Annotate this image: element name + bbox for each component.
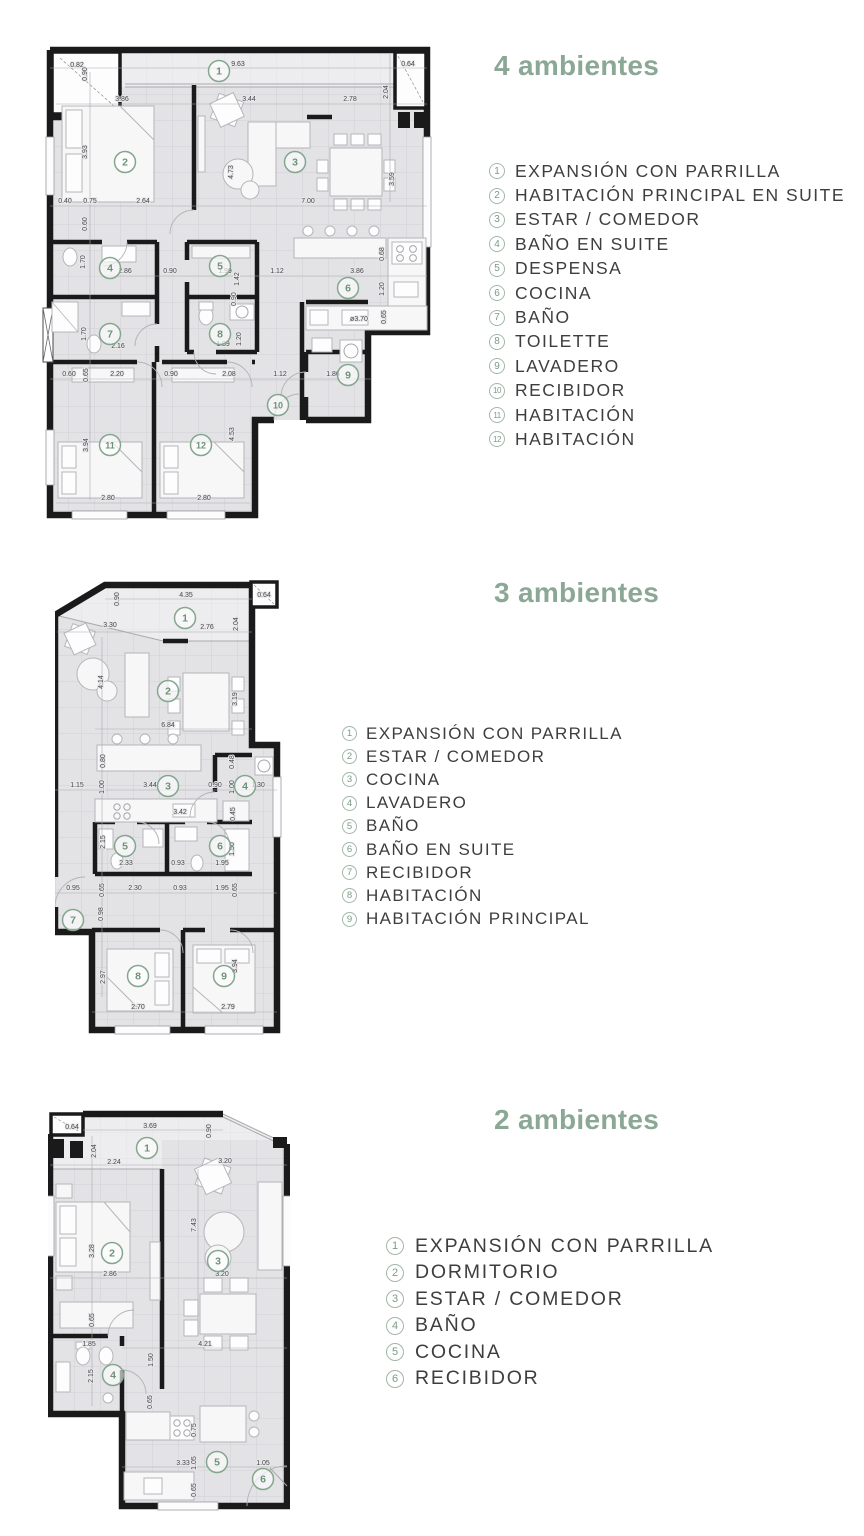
dimension-label: 0.45 (230, 807, 237, 821)
dimension-label: 0.93 (173, 885, 187, 892)
dimension-label: 2.86 (103, 1271, 117, 1278)
svg-text:5: 5 (217, 261, 223, 273)
legend-item-label: ESTAR / COMEDOR (515, 209, 701, 230)
svg-text:8: 8 (217, 329, 223, 341)
dimension-label: 0.65 (147, 1395, 154, 1409)
legend-item-label: EXPANSIÓN CON PARRILLA (415, 1235, 714, 1258)
dimension-label: 0.80 (100, 754, 107, 768)
dimension-label: 1.00 (99, 780, 106, 794)
legend-4-ambientes: 1EXPANSIÓN CON PARRILLA2HABITACIÓN PRINC… (489, 159, 845, 452)
svg-text:11: 11 (105, 441, 115, 451)
dimension-label: 3.42 (173, 809, 187, 816)
dimension-label: 0.98 (98, 907, 105, 921)
dimension-label: 2.33 (119, 860, 133, 867)
room-marker: 8 (210, 324, 231, 345)
svg-text:6: 6 (345, 283, 351, 295)
dimension-label: 0.90 (82, 67, 89, 81)
dimension-label: 2.24 (107, 1159, 121, 1166)
legend-number-badge: 2 (489, 188, 505, 204)
dimension-label: 0.48 (229, 755, 236, 769)
svg-text:6: 6 (260, 1474, 266, 1486)
room-marker: 4 (235, 776, 256, 797)
dimension-label: 2.20 (110, 371, 124, 378)
legend-item: 11HABITACIÓN (489, 403, 845, 427)
legend-number-badge: 3 (342, 772, 357, 787)
dimension-label: 2.80 (101, 495, 115, 502)
dimension-label: 2.79 (221, 1004, 235, 1011)
room-marker: 5 (207, 1452, 228, 1473)
room-marker: 12 (191, 435, 212, 456)
svg-text:2: 2 (122, 157, 128, 169)
legend-item: 9LAVADERO (489, 354, 845, 378)
floor-plan-2-ambientes: 0.643.690.902.042.243.203.282.867.433.20… (48, 1106, 290, 1516)
svg-text:1: 1 (216, 66, 222, 78)
room-marker: 6 (253, 1469, 274, 1490)
dimension-label: 3.93 (82, 145, 89, 159)
dimension-label: 0.90 (164, 371, 178, 378)
legend-number-badge: 2 (342, 749, 357, 764)
legend-item-label: BAÑO (515, 307, 571, 328)
dimension-label: 3.86 (350, 268, 364, 275)
legend-item-label: HABITACIÓN (366, 886, 483, 906)
room-marker: 1 (175, 608, 196, 629)
dimension-label: 1.12 (273, 371, 287, 378)
dimension-label: 1.50 (148, 1353, 155, 1367)
dimension-label: 1.20 (236, 332, 243, 346)
dimension-label: 0.75 (83, 198, 97, 205)
room-marker: 3 (208, 1251, 229, 1272)
dimension-label: 0.90 (206, 1124, 213, 1138)
svg-text:6: 6 (217, 841, 223, 853)
legend-number-badge: 5 (342, 819, 357, 834)
legend-item: 5COCINA (386, 1339, 714, 1366)
legend-number-badge: 7 (342, 865, 357, 880)
legend-item: 2HABITACIÓN PRINCIPAL EN SUITE (489, 183, 845, 207)
legend-item-label: RECIBIDOR (415, 1367, 540, 1390)
legend-number-badge: 12 (489, 431, 505, 447)
svg-text:7: 7 (107, 329, 113, 341)
room-marker: 2 (115, 152, 136, 173)
legend-item: 3COCINA (342, 768, 623, 791)
legend-item: 6BAÑO EN SUITE (342, 838, 623, 861)
legend-item-label: EXPANSIÓN CON PARRILLA (366, 724, 623, 744)
dimension-label: 7.00 (301, 198, 315, 205)
dimension-label: 4.35 (179, 592, 193, 599)
legend-number-badge: 6 (342, 842, 357, 857)
dimension-label: 2.80 (197, 495, 211, 502)
room-marker: 5 (210, 256, 231, 277)
plan-title-2-ambientes: 2 ambientes (494, 1104, 659, 1136)
legend-item: 12HABITACIÓN (489, 427, 845, 451)
legend-item: 7BAÑO (489, 305, 845, 329)
legend-item: 4BAÑO (386, 1313, 714, 1340)
legend-number-badge: 9 (489, 358, 505, 374)
legend-item-label: TOILETTE (515, 331, 610, 352)
room-marker: 6 (210, 836, 231, 857)
dimension-label: 0.68 (379, 247, 386, 261)
dimension-label: 1.05 (191, 1456, 198, 1470)
legend-item-label: HABITACIÓN PRINCIPAL EN SUITE (515, 185, 845, 206)
room-marker: 6 (338, 278, 359, 299)
dimension-label: 0.95 (66, 885, 80, 892)
legend-number-badge: 3 (489, 212, 505, 228)
svg-text:4: 4 (110, 1370, 116, 1382)
svg-text:3: 3 (292, 157, 298, 169)
dimension-label: 0.65 (83, 368, 90, 382)
legend-item-label: EXPANSIÓN CON PARRILLA (515, 161, 781, 182)
room-marker: 1 (209, 61, 230, 82)
room-marker: 3 (158, 776, 179, 797)
dimension-label: 1.95 (215, 885, 229, 892)
svg-text:7: 7 (70, 915, 76, 927)
legend-item-label: ESTAR / COMEDOR (415, 1288, 624, 1311)
dimension-label: 3.44 (143, 782, 157, 789)
dimension-label: 1.12 (270, 268, 284, 275)
dimension-label: 0.65 (89, 1313, 96, 1327)
dimension-label: 3.19 (232, 692, 239, 706)
legend-item-label: DESPENSA (515, 258, 622, 279)
svg-text:4: 4 (107, 263, 113, 275)
legend-3-ambientes: 1EXPANSIÓN CON PARRILLA2ESTAR / COMEDOR3… (342, 722, 623, 931)
legend-item-label: BAÑO EN SUITE (515, 234, 670, 255)
legend-item: 4LAVADERO (342, 792, 623, 815)
legend-item-label: LAVADERO (515, 356, 620, 377)
svg-text:3: 3 (215, 1256, 221, 1268)
legend-item: 1EXPANSIÓN CON PARRILLA (342, 722, 623, 745)
dimension-label: 0.90 (114, 592, 121, 606)
dimension-label: 2.64 (136, 198, 150, 205)
dimension-label: 2.04 (233, 617, 240, 631)
svg-text:12: 12 (196, 441, 206, 451)
dimension-label: 0.64 (257, 592, 271, 599)
room-marker: 11 (100, 435, 121, 456)
dimension-label: 0.40 (58, 198, 72, 205)
dimension-label: 1.15 (70, 782, 84, 789)
legend-item-label: HABITACIÓN (515, 405, 636, 426)
room-marker: 2 (102, 1243, 123, 1264)
dimension-label: 3.94 (83, 438, 90, 452)
dimension-label: 4.14 (98, 675, 105, 689)
room-marker: 4 (103, 1365, 124, 1386)
legend-number-badge: 6 (489, 285, 505, 301)
legend-item: 4BAÑO EN SUITE (489, 232, 845, 256)
dimension-label: 2.04 (91, 1144, 98, 1158)
legend-item-label: DORMITORIO (415, 1261, 559, 1284)
dimension-label: 4.21 (198, 1341, 212, 1348)
svg-text:8: 8 (135, 971, 141, 983)
room-marker: 7 (63, 910, 84, 931)
room-marker: 10 (268, 395, 289, 416)
legend-item-label: HABITACIÓN (515, 429, 636, 450)
legend-number-badge: 4 (342, 796, 357, 811)
room-marker: 9 (214, 966, 235, 987)
legend-number-badge: 5 (386, 1343, 404, 1361)
legend-number-badge: 8 (489, 334, 505, 350)
svg-text:2: 2 (165, 686, 171, 698)
room-marker: 8 (128, 966, 149, 987)
dimension-label: 3.30 (103, 622, 117, 629)
dimension-label: 0.65 (381, 310, 388, 324)
legend-item: 1EXPANSIÓN CON PARRILLA (489, 159, 845, 183)
legend-item: 6COCINA (489, 281, 845, 305)
legend-item: 2ESTAR / COMEDOR (342, 745, 623, 768)
dimension-label: 0.65 (99, 883, 106, 897)
legend-number-badge: 1 (386, 1237, 404, 1255)
legend-number-badge: 11 (489, 407, 505, 423)
legend-2-ambientes: 1EXPANSIÓN CON PARRILLA2DORMITORIO3ESTAR… (386, 1233, 714, 1392)
legend-item: 3ESTAR / COMEDOR (489, 208, 845, 232)
svg-text:2: 2 (109, 1248, 115, 1260)
legend-item: 5BAÑO (342, 815, 623, 838)
legend-item: 10RECIBIDOR (489, 379, 845, 403)
room-marker: 7 (100, 324, 121, 345)
dimension-label: 7.43 (191, 1218, 198, 1232)
legend-number-badge: 10 (489, 383, 505, 399)
legend-item-label: RECIBIDOR (366, 863, 473, 883)
dimension-label: 3.28 (89, 1244, 96, 1258)
legend-item-label: BAÑO (366, 816, 420, 836)
dimension-label: 0.90 (208, 782, 222, 789)
legend-number-badge: 6 (386, 1370, 404, 1388)
dimension-label: 1.70 (80, 255, 87, 269)
dimension-label: 2.78 (343, 96, 357, 103)
room-marker: 5 (115, 836, 136, 857)
svg-text:1: 1 (182, 613, 188, 625)
legend-item: 2DORMITORIO (386, 1260, 714, 1287)
legend-item-label: LAVADERO (366, 793, 467, 813)
dimension-label: 1.05 (256, 1460, 270, 1467)
dimension-label: 0.64 (401, 61, 415, 68)
legend-item: 5DESPENSA (489, 257, 845, 281)
dimension-label: 2.08 (222, 371, 236, 378)
plan-title-3-ambientes: 3 ambientes (494, 577, 659, 609)
legend-number-badge: 5 (489, 261, 505, 277)
floor-plan-3-ambientes: 0.904.350.643.302.762.044.143.196.840.80… (55, 577, 283, 1035)
room-marker: 9 (338, 365, 359, 386)
legend-item: 6RECIBIDOR (386, 1366, 714, 1393)
svg-text:5: 5 (214, 1457, 220, 1469)
dimension-label: 2.15 (100, 835, 107, 849)
legend-number-badge: 4 (489, 236, 505, 252)
dimension-label: 3.59 (389, 172, 396, 186)
dimension-label: 0.75 (191, 1423, 198, 1437)
svg-text:3: 3 (165, 781, 171, 793)
dimension-label: 3.20 (218, 1158, 232, 1165)
dimension-label: 9.63 (231, 61, 245, 68)
svg-text:9: 9 (345, 370, 351, 382)
dimension-label: 1.42 (234, 272, 241, 286)
floor-plan-4-ambientes: 0.820.909.630.643.863.442.782.043.934.73… (42, 42, 434, 528)
legend-item-label: ESTAR / COMEDOR (366, 747, 545, 767)
legend-item-label: COCINA (415, 1341, 502, 1364)
dimension-label: ø3.70 (350, 316, 368, 323)
legend-number-badge: 1 (342, 726, 357, 741)
room-marker: 1 (137, 1138, 158, 1159)
legend-item-label: BAÑO EN SUITE (366, 840, 516, 860)
legend-number-badge: 2 (386, 1264, 404, 1282)
legend-item-label: BAÑO (415, 1314, 477, 1337)
legend-number-badge: 3 (386, 1290, 404, 1308)
room-marker: 4 (100, 258, 121, 279)
dimension-label: 3.33 (176, 1460, 190, 1467)
dimension-label: 1.95 (215, 860, 229, 867)
dimension-label: 3.44 (242, 96, 256, 103)
dimension-label: 0.90 (163, 268, 177, 275)
dimension-label: 0.65 (232, 883, 239, 897)
legend-item-label: COCINA (515, 283, 592, 304)
dimension-label: 2.97 (100, 970, 107, 984)
svg-text:1: 1 (144, 1143, 150, 1155)
dimension-label: 0.93 (171, 860, 185, 867)
legend-number-badge: 9 (342, 912, 357, 927)
plan-title-4-ambientes: 4 ambientes (494, 50, 659, 82)
legend-item-label: COCINA (366, 770, 441, 790)
dimension-label: 0.64 (65, 1124, 79, 1131)
legend-item: 1EXPANSIÓN CON PARRILLA (386, 1233, 714, 1260)
dimension-label: 2.15 (88, 1369, 95, 1383)
dimension-label: 2.04 (383, 85, 390, 99)
legend-item: 8TOILETTE (489, 330, 845, 354)
dimension-label: 0.90 (231, 292, 238, 306)
legend-number-badge: 8 (342, 888, 357, 903)
dimension-label: 3.86 (115, 96, 129, 103)
dimension-label: 1.20 (379, 282, 386, 296)
svg-text:10: 10 (273, 401, 283, 411)
dimension-label: 3.69 (143, 1123, 157, 1130)
room-marker: 3 (285, 152, 306, 173)
legend-item: 7RECIBIDOR (342, 861, 623, 884)
legend-item: 3ESTAR / COMEDOR (386, 1286, 714, 1313)
svg-text:4: 4 (242, 781, 248, 793)
dimension-label: 2.70 (131, 1004, 145, 1011)
legend-item-label: RECIBIDOR (515, 380, 626, 401)
dimension-label: 2.30 (128, 885, 142, 892)
dimension-label: 0.60 (82, 217, 89, 231)
dimension-label: 6.84 (161, 722, 175, 729)
svg-text:9: 9 (221, 971, 227, 983)
dimension-label: 2.76 (200, 624, 214, 631)
legend-item: 8HABITACIÓN (342, 884, 623, 907)
room-marker: 2 (158, 681, 179, 702)
dimension-label: 4.73 (228, 165, 235, 179)
legend-number-badge: 7 (489, 310, 505, 326)
dimension-label: 0.60 (62, 371, 76, 378)
legend-item-label: HABITACIÓN PRINCIPAL (366, 909, 590, 929)
svg-text:5: 5 (122, 841, 128, 853)
legend-number-badge: 1 (489, 163, 505, 179)
dimension-label: 0.65 (191, 1483, 198, 1497)
dimension-label: 1.70 (81, 327, 88, 341)
dimension-label: 1.85 (82, 1341, 96, 1348)
dimension-label: 4.53 (229, 427, 236, 441)
legend-number-badge: 4 (386, 1317, 404, 1335)
legend-item: 9HABITACIÓN PRINCIPAL (342, 908, 623, 931)
